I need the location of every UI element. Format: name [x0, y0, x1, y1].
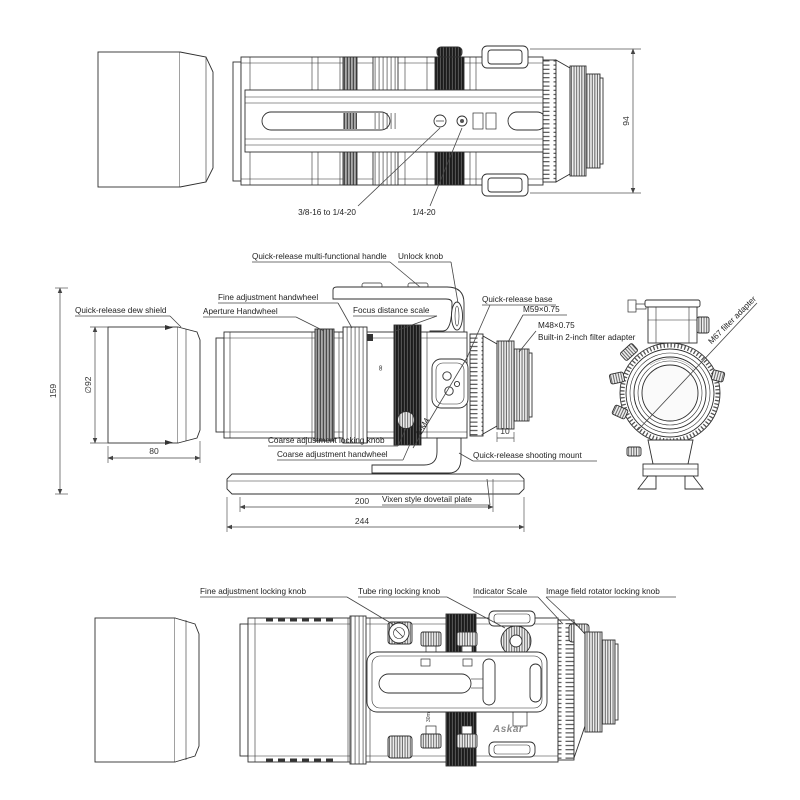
bottom-dew-shield — [95, 618, 199, 762]
top-tube-ring-clamp — [482, 46, 528, 68]
dim-80: 80 — [149, 446, 159, 456]
bottom-mount-plate — [367, 652, 547, 712]
side-rotator-and-rings — [470, 334, 532, 436]
top-dew-shield — [98, 52, 213, 187]
label-coarse-handwheel: Coarse adjustment handwheel — [277, 450, 388, 459]
label-tube-ring-lock: Tube ring locking knob — [358, 587, 441, 596]
dim-94: 94 — [621, 116, 631, 126]
rear-view: M67 filter adapter — [609, 294, 758, 489]
label-filter-adapter-2in: Built-in 2-inch filter adapter — [538, 333, 636, 342]
label-unlock-knob: Unlock knob — [398, 252, 444, 261]
label-m59: M59×0.75 — [523, 305, 560, 314]
rear-dovetail-clamp — [627, 440, 703, 489]
bottom-view: Fine adjustment locking knob Tube ring l… — [95, 587, 676, 766]
bottom-rotator-and-rings — [558, 620, 618, 760]
rear-handle — [628, 300, 709, 343]
focus-infinity-mark: ∞ — [376, 365, 385, 372]
label-fine-handwheel: Fine adjustment handwheel — [218, 293, 318, 302]
bottom-qr-clamp-bottom — [489, 742, 535, 757]
rear-handle-knob — [697, 317, 709, 333]
side-fine-handwheel — [343, 327, 367, 443]
label-aperture-handwheel: Aperture Handwheel — [203, 307, 278, 316]
side-dew-shield — [108, 325, 200, 445]
label-dew-shield: Quick-release dew shield — [75, 306, 167, 315]
side-dovetail-plate — [227, 474, 524, 494]
label-m48: M48×0.75 — [538, 321, 575, 330]
side-tube — [216, 325, 468, 445]
dim-92: ∅92 — [83, 376, 93, 393]
side-aperture-handwheel — [315, 329, 334, 441]
label-handle: Quick-release multi-functional handle — [252, 252, 387, 261]
label-rotator-lock: Image field rotator locking knob — [546, 587, 660, 596]
dim-159: 159 — [48, 384, 58, 398]
dim-200: 200 — [355, 496, 369, 506]
side-m48-ring — [514, 349, 529, 421]
brand-logo: Askar — [492, 724, 524, 735]
label-thread-14: 1/4-20 — [412, 208, 436, 217]
label-qr-mount: Quick-release shooting mount — [473, 451, 582, 460]
label-dovetail: Vixen style dovetail plate — [382, 495, 472, 504]
top-view: 3/8-16 to 1/4-20 1/4-20 94 — [98, 46, 641, 217]
label-fine-lock: Fine adjustment locking knob — [200, 587, 306, 596]
dim-10: 10 — [500, 426, 510, 436]
top-rotator-and-rings — [543, 60, 603, 182]
label-m67: M67 filter adapter — [707, 294, 759, 346]
side-qr-base-plate — [432, 359, 468, 408]
rear-m67-thread — [642, 365, 698, 421]
label-thread-38: 3/8-16 to 1/4-20 — [298, 208, 356, 217]
label-qr-base: Quick-release base — [482, 295, 553, 304]
side-coarse-locking-knob — [398, 412, 415, 429]
top-coarse-knob-cap — [437, 47, 462, 57]
label-indicator-scale: Indicator Scale — [473, 587, 528, 596]
side-m59-ring — [497, 341, 514, 429]
focus-30m-mark: 30m — [426, 712, 432, 722]
top-mounting-bar — [245, 90, 556, 152]
bottom-qr-clamp-top — [489, 611, 535, 626]
technical-drawing: 3/8-16 to 1/4-20 1/4-20 94 — [0, 0, 800, 800]
label-coarse-lock: Coarse adjustment locking knob — [268, 436, 385, 445]
dim-244: 244 — [355, 516, 369, 526]
label-focus-scale: Focus distance scale — [353, 306, 430, 315]
side-view: Quick-release dew shield Fine adjustment… — [48, 252, 636, 532]
